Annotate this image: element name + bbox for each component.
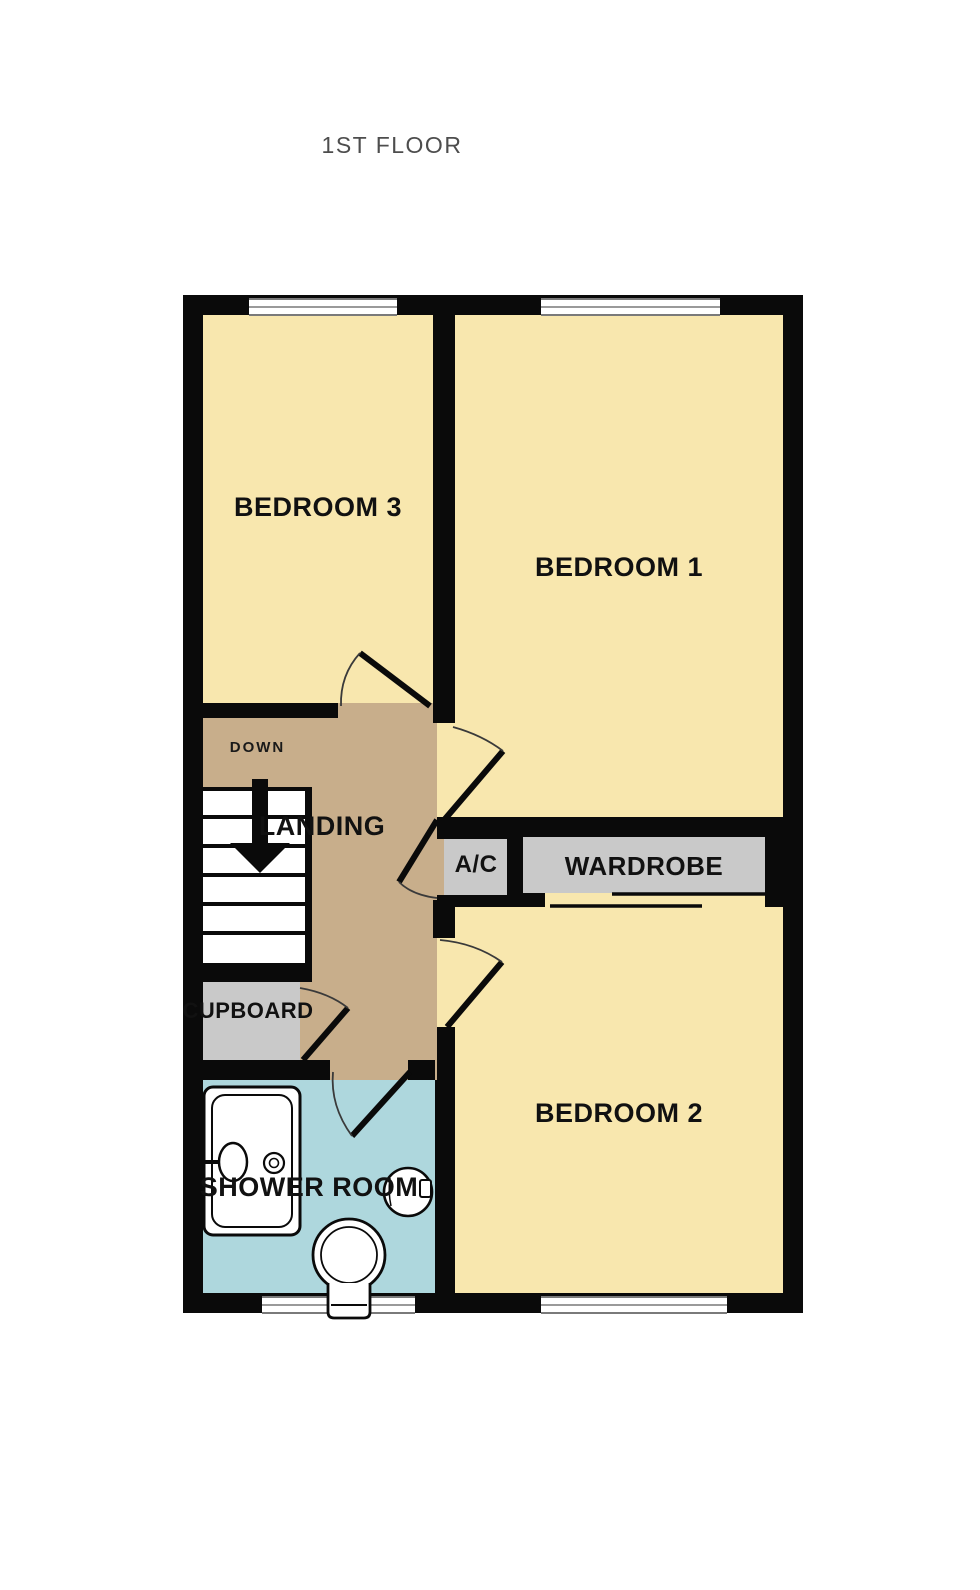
shower-door-opening xyxy=(330,1060,408,1080)
room-label-bedroom-2: BEDROOM 2 xyxy=(455,1100,783,1127)
bedroom-3-door-opening xyxy=(338,703,433,718)
stairs-down-label: DOWN xyxy=(203,739,312,756)
wall-stub xyxy=(433,900,455,938)
room-landing-corridor xyxy=(312,718,437,1080)
window-shower xyxy=(262,1296,415,1314)
window-bedroom-3 xyxy=(249,298,397,316)
floor-title: 1ST FLOOR xyxy=(292,132,492,159)
room-label-shower: SHOWER ROOM xyxy=(193,1174,425,1201)
wall-endcap xyxy=(433,703,455,723)
bedroom-1-door-opening xyxy=(437,723,455,817)
room-label-landing: LANDING xyxy=(242,813,402,840)
wardrobe-front-gap xyxy=(545,893,765,907)
ac-door-opening xyxy=(437,839,444,895)
wall-shower xyxy=(305,1060,330,1080)
window-bedroom-2 xyxy=(541,1296,727,1314)
bedroom-2-door-opening xyxy=(437,938,455,1027)
floorplan-canvas: 1ST FLOOR xyxy=(0,0,980,1590)
room-label-bedroom-3: BEDROOM 3 xyxy=(203,494,433,521)
room-label-wardrobe: WARDROBE xyxy=(523,853,765,879)
wall-shower-stub xyxy=(408,1060,435,1080)
room-label-bedroom-1: BEDROOM 1 xyxy=(455,554,783,581)
window-bedroom-1 xyxy=(541,298,720,316)
room-label-ac: A/C xyxy=(444,853,508,877)
room-label-cupboard: CUPBOARD xyxy=(180,1000,316,1022)
